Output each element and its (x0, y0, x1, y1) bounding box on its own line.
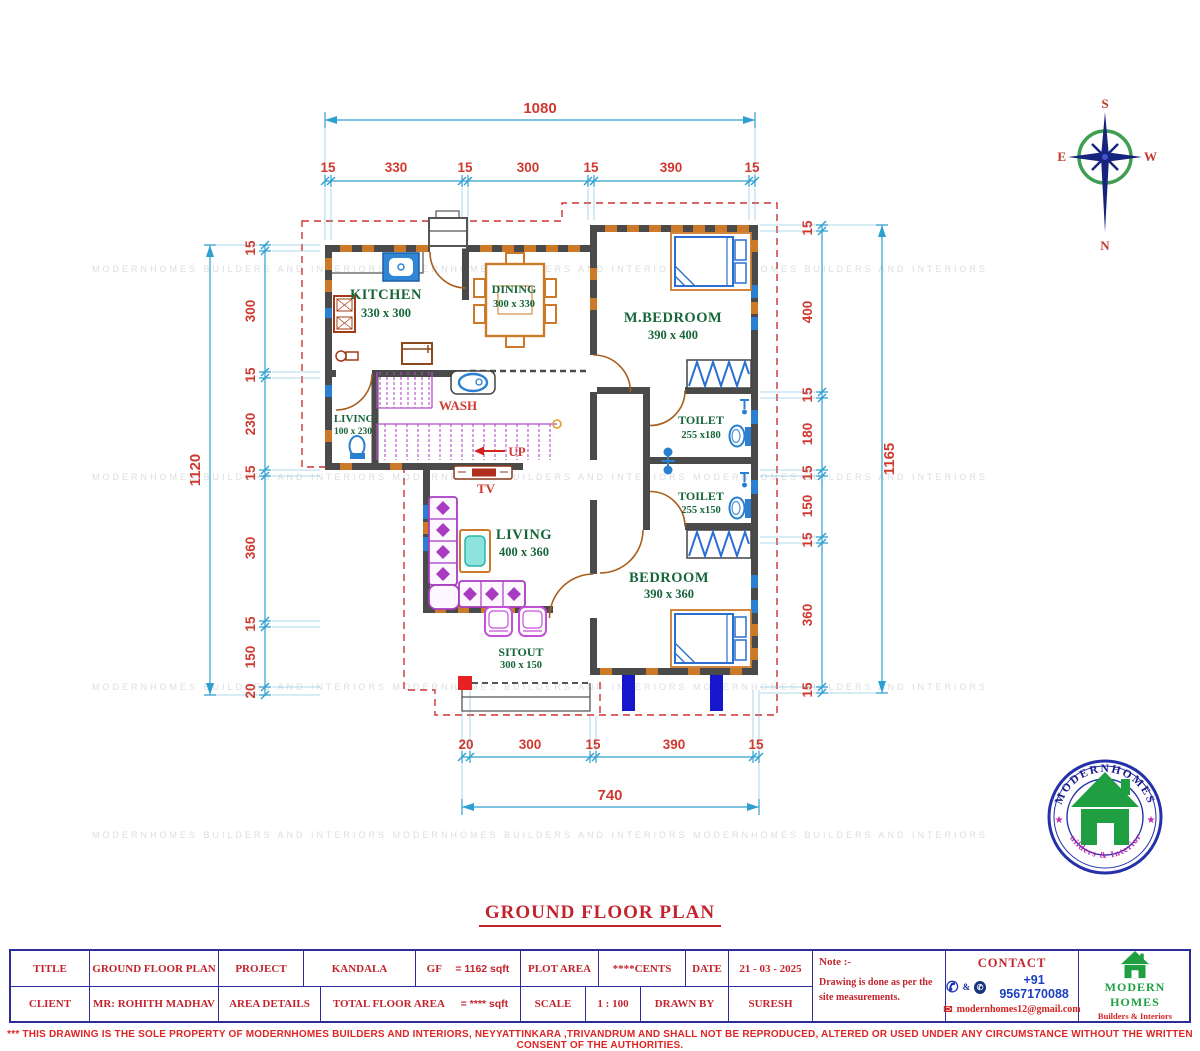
dim-label: 15 (243, 465, 258, 481)
room-label-dining: DINING (492, 282, 537, 296)
duct (429, 211, 467, 246)
logo-star-left: ★ (1055, 815, 1064, 826)
dim-label: 15 (744, 160, 760, 175)
room-size-dining: 300 x 330 (493, 299, 535, 310)
gf-value: = 1162 sqft (455, 963, 509, 975)
dim-label: 360 (243, 537, 258, 560)
gf-label: GF (427, 963, 442, 975)
cell-project-value: KANDALA (304, 951, 416, 987)
cell-title-label: TITLE (11, 951, 90, 987)
dim-label: 15 (320, 160, 336, 175)
cell-plot-area-label: PLOT AREA (521, 951, 599, 987)
room-size-living-small: 100 x 230 (334, 427, 372, 437)
room-label-toilet2: TOILET (678, 489, 724, 503)
dim-label: 300 (517, 160, 540, 175)
dim-label: 300 (519, 737, 542, 752)
room-size-toilet1: 255 x180 (681, 430, 720, 441)
compass-s: S (1101, 96, 1108, 111)
room-label-living: LIVING (496, 527, 552, 543)
logo-arc-text-bottom: Builders & Interiors (0, 0, 1143, 860)
contact-heading: CONTACT (978, 956, 1047, 971)
cell-brand-logo: MODERN HOMES Builders & Interiors (1079, 951, 1191, 1021)
room-label-mbedroom: M.BEDROOM (624, 310, 722, 326)
dim-left-total: 1120 (187, 454, 204, 487)
wc-icon (730, 426, 752, 447)
sheet-title-text: GROUND FLOOR PLAN (479, 902, 721, 927)
room-size-bedroom: 390 x 360 (644, 587, 694, 601)
wc-icon-small (350, 436, 366, 459)
phone-icon: ✆ (946, 978, 959, 997)
logo-star-right: ★ (1147, 815, 1156, 826)
room-size-toilet2: 255 x150 (681, 505, 720, 516)
compass-e: E (1057, 149, 1066, 164)
cell-gf-area: GF = 1162 sqft (416, 951, 521, 987)
dim-label: 15 (243, 367, 258, 383)
sheet-title: GROUND FLOOR PLAN (0, 902, 1200, 924)
compass-n: N (1100, 238, 1110, 253)
label-tv: TV (477, 481, 496, 496)
brand-tagline: Builders & Interiors (1098, 1011, 1172, 1021)
email-icon: ✉ (943, 1003, 952, 1016)
cell-area-details-label: AREA DETAILS (219, 987, 321, 1021)
cell-project-label: PROJECT (219, 951, 304, 987)
room-size-sitout: 300 x 150 (500, 660, 542, 671)
cell-drawn-by-value: SURESH (729, 987, 813, 1021)
disclaimer-text: *** THIS DRAWING IS THE SOLE PROPERTY OF… (0, 1029, 1200, 1051)
cell-contact: CONTACT ✆ & ✆ +91 9567170088 ✉ modernhom… (946, 951, 1079, 1021)
dim-label: 15 (457, 160, 473, 175)
title-block: TITLE GROUND FLOOR PLAN PROJECT KANDALA … (9, 949, 1191, 1023)
dim-bottom-total: 740 (597, 787, 622, 804)
dim-label: 390 (660, 160, 683, 175)
compass-w: W (1144, 149, 1157, 164)
cell-total-floor-area: TOTAL FLOOR AREA = **** sqft (321, 987, 521, 1021)
dim-label: 15 (800, 387, 815, 403)
cell-date-label: DATE (686, 951, 729, 987)
floor-plan-drawing: MODERNHOMES BUILDERS AND INTERIORS MODER… (0, 0, 1200, 940)
dim-label: 15 (800, 465, 815, 481)
dim-label: 15 (748, 737, 764, 752)
room-label-sitout: SITOUT (498, 645, 543, 659)
dim-label: 15 (583, 160, 599, 175)
dim-label: 330 (385, 160, 408, 175)
watermark-row: MODERNHOMES BUILDERS AND INTERIORS MODER… (92, 472, 988, 482)
dimension-labels: 1080 15 330 15 300 15 390 15 1120 15 300… (187, 100, 898, 804)
dim-label: 150 (800, 495, 815, 518)
room-size-living: 400 x 360 (499, 545, 549, 559)
room-label-living-small: LIVING (334, 413, 375, 425)
dim-label: 15 (800, 682, 815, 698)
note-label: Note :- (819, 956, 851, 968)
dim-right-total: 1165 (881, 443, 898, 476)
red-marker (458, 676, 472, 690)
wash-basin-icon (451, 371, 495, 394)
wardrobe-icon (687, 360, 751, 388)
dim-label: 230 (243, 413, 258, 436)
grinder-icon (336, 351, 358, 361)
center-table (460, 530, 490, 572)
total-floor-area-value: = **** sqft (461, 998, 509, 1010)
column-pillar (710, 675, 723, 711)
note-text: Drawing is done as per the site measurem… (819, 975, 939, 1005)
cell-plot-area-value: ****CENTS (599, 951, 686, 987)
cell-client-label: CLIENT (11, 987, 90, 1021)
brand-name: MODERN HOMES (1079, 980, 1191, 1010)
floor-plan-sheet: MODERNHOMES BUILDERS AND INTERIORS MODER… (0, 0, 1200, 1051)
cell-title-value: GROUND FLOOR PLAN (90, 951, 219, 987)
whatsapp-icon: ✆ (974, 981, 986, 994)
dim-label: 15 (800, 220, 815, 236)
dim-label: 15 (243, 240, 258, 256)
dim-label: 20 (243, 683, 258, 698)
dim-label: 15 (585, 737, 601, 752)
room-label-toilet1: TOILET (678, 413, 724, 427)
cell-client-value: MR: ROHITH MADHAV (90, 987, 219, 1021)
compass-rose: S N E W (1057, 96, 1157, 253)
cell-scale-value: 1 : 100 (586, 987, 641, 1021)
up-arrow (474, 447, 505, 456)
watermark-row: MODERNHOMES BUILDERS AND INTERIORS MODER… (92, 682, 988, 692)
dim-label: 150 (243, 646, 258, 669)
column-pillar (622, 675, 635, 711)
bed-icon (671, 233, 751, 290)
tv-unit (454, 466, 512, 479)
svg-text:Builders & Interiors: Builders & Interiors (0, 0, 1143, 860)
cell-drawn-by-label: DRAWN BY (641, 987, 729, 1021)
label-up: UP (508, 444, 525, 459)
cell-scale-label: SCALE (521, 987, 586, 1021)
contact-email: modernhomes12@gmail.com (957, 1004, 1081, 1015)
contact-phone-number: +91 9567170088 (990, 973, 1078, 1001)
cell-note: Note :- Drawing is done as per the site … (813, 951, 946, 1021)
dimensions (204, 112, 888, 815)
room-label-bedroom: BEDROOM (629, 570, 709, 586)
label-wash: WASH (439, 398, 477, 413)
dim-label: 390 (663, 737, 686, 752)
dim-top-total: 1080 (523, 100, 556, 117)
dim-label: 15 (800, 532, 815, 548)
ampersand: & (963, 982, 971, 992)
cell-date-value: 21 - 03 - 2025 (729, 951, 813, 987)
room-size-mbedroom: 390 x 400 (648, 328, 698, 342)
sink-icon (383, 253, 419, 281)
dim-label: 180 (800, 423, 815, 446)
dim-label: 300 (243, 300, 258, 323)
company-logo-seal: MODERNHOMES Builders & Interiors ★ ★ (0, 0, 1161, 873)
dim-label: 360 (800, 604, 815, 627)
total-floor-area-label: TOTAL FLOOR AREA (333, 998, 445, 1010)
brand-house-icon (1115, 951, 1155, 979)
room-size-kitchen: 330 x 300 (361, 306, 411, 320)
dim-label: 400 (800, 301, 815, 324)
dim-label: 20 (458, 737, 473, 752)
watermark-row: MODERNHOMES BUILDERS AND INTERIORS MODER… (92, 830, 988, 840)
fridge-icon (402, 343, 432, 364)
room-label-kitchen: KITCHEN (350, 287, 422, 303)
dim-label: 15 (243, 616, 258, 632)
